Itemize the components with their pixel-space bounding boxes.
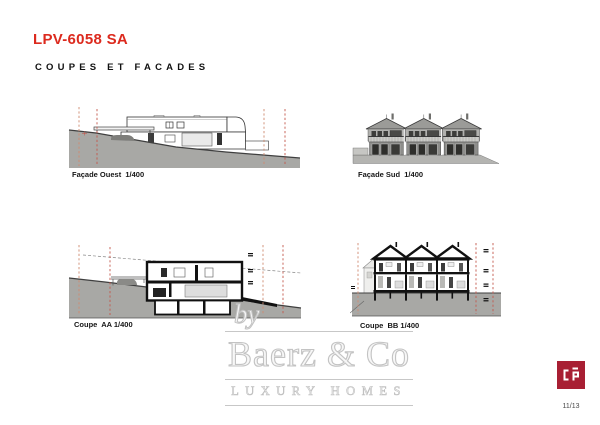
drawing-label-coupe-aa: Coupe AA 1/400 (74, 320, 133, 329)
ground (353, 155, 499, 164)
garden-wall (353, 148, 368, 155)
drawing-coupe-bb (350, 237, 515, 325)
drawing-label-coupe-bb: Coupe BB 1/400 (360, 321, 419, 330)
ground (350, 293, 501, 316)
drawing-facade-sud (352, 99, 514, 169)
page-title: LPV-6058 SA (33, 31, 128, 48)
car (117, 279, 137, 285)
coupe-aa-svg (65, 235, 305, 327)
watermark-rule-middle (225, 379, 413, 380)
drawing-facade-ouest (66, 97, 304, 175)
basement (155, 301, 230, 315)
watermark-by: by (234, 299, 259, 330)
cp-logo-icon (557, 361, 585, 389)
page-number: 11/13 (555, 403, 587, 410)
page-subtitle: COUPES ET FACADES (35, 62, 209, 73)
facade-ouest-svg (66, 97, 304, 175)
car (111, 135, 135, 141)
garage-door (182, 133, 212, 146)
watermark-brand: Baerz & Co (219, 334, 419, 374)
watermark-rule-bottom (225, 405, 413, 406)
watermark-tagline: LUXURY HOMES (219, 384, 419, 399)
drawing-label-facade-ouest: Façade Ouest 1/400 (72, 170, 144, 179)
coupe-bb-svg (350, 237, 515, 325)
drawing-label-facade-sud: Façade Sud 1/400 (358, 170, 423, 179)
watermark-rule-top (225, 331, 413, 332)
facade-sud-svg (352, 99, 514, 169)
section-building (374, 242, 470, 301)
drawing-coupe-aa (65, 235, 305, 327)
row-houses (366, 114, 482, 156)
cp-logo (557, 361, 585, 389)
